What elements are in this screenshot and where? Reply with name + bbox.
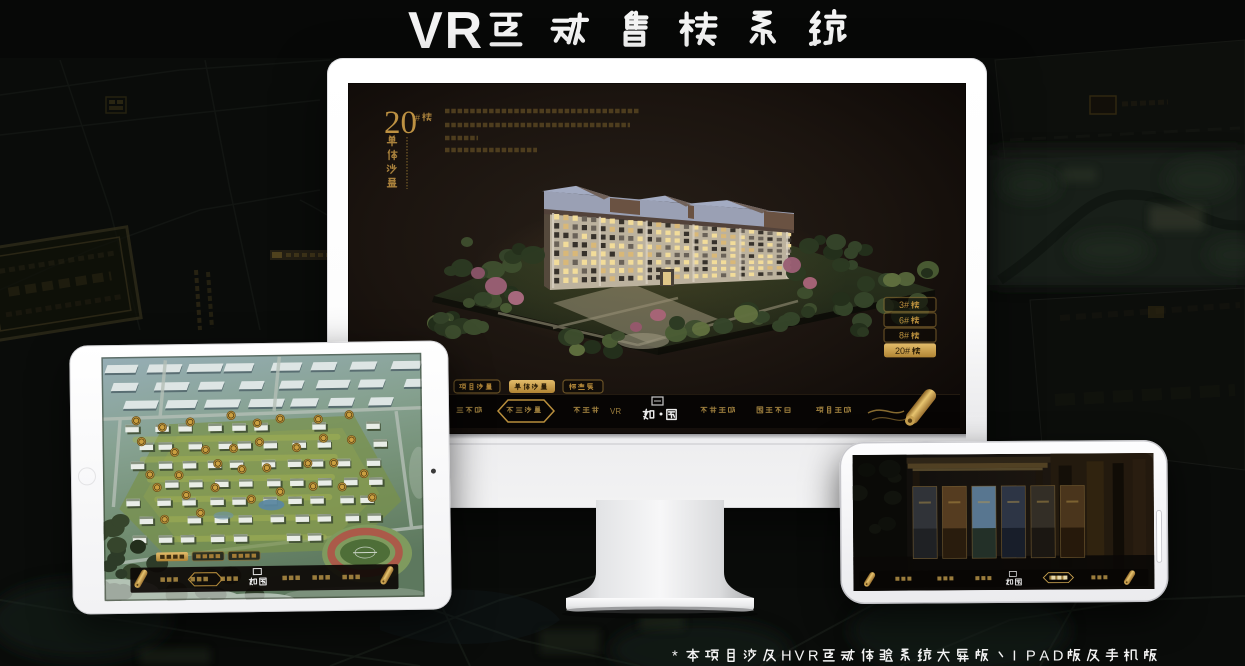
svg-text:A: A <box>1039 649 1049 665</box>
svg-text:VR: VR <box>610 407 621 416</box>
svg-text:H: H <box>781 649 792 665</box>
svg-text:3#: 3# <box>899 300 909 310</box>
svg-text:20#: 20# <box>895 346 910 356</box>
svg-text:6#: 6# <box>899 315 909 325</box>
svg-text:VR: VR <box>408 2 484 60</box>
svg-text:*: * <box>672 649 678 665</box>
svg-text:20: 20 <box>384 105 417 141</box>
svg-text:R: R <box>808 649 819 665</box>
svg-text:P: P <box>1026 649 1036 665</box>
svg-text:8#: 8# <box>899 331 909 341</box>
svg-text:D: D <box>1053 649 1064 665</box>
svg-text:#: # <box>415 113 420 123</box>
svg-text:V: V <box>795 649 805 665</box>
svg-text:I: I <box>1012 649 1016 665</box>
